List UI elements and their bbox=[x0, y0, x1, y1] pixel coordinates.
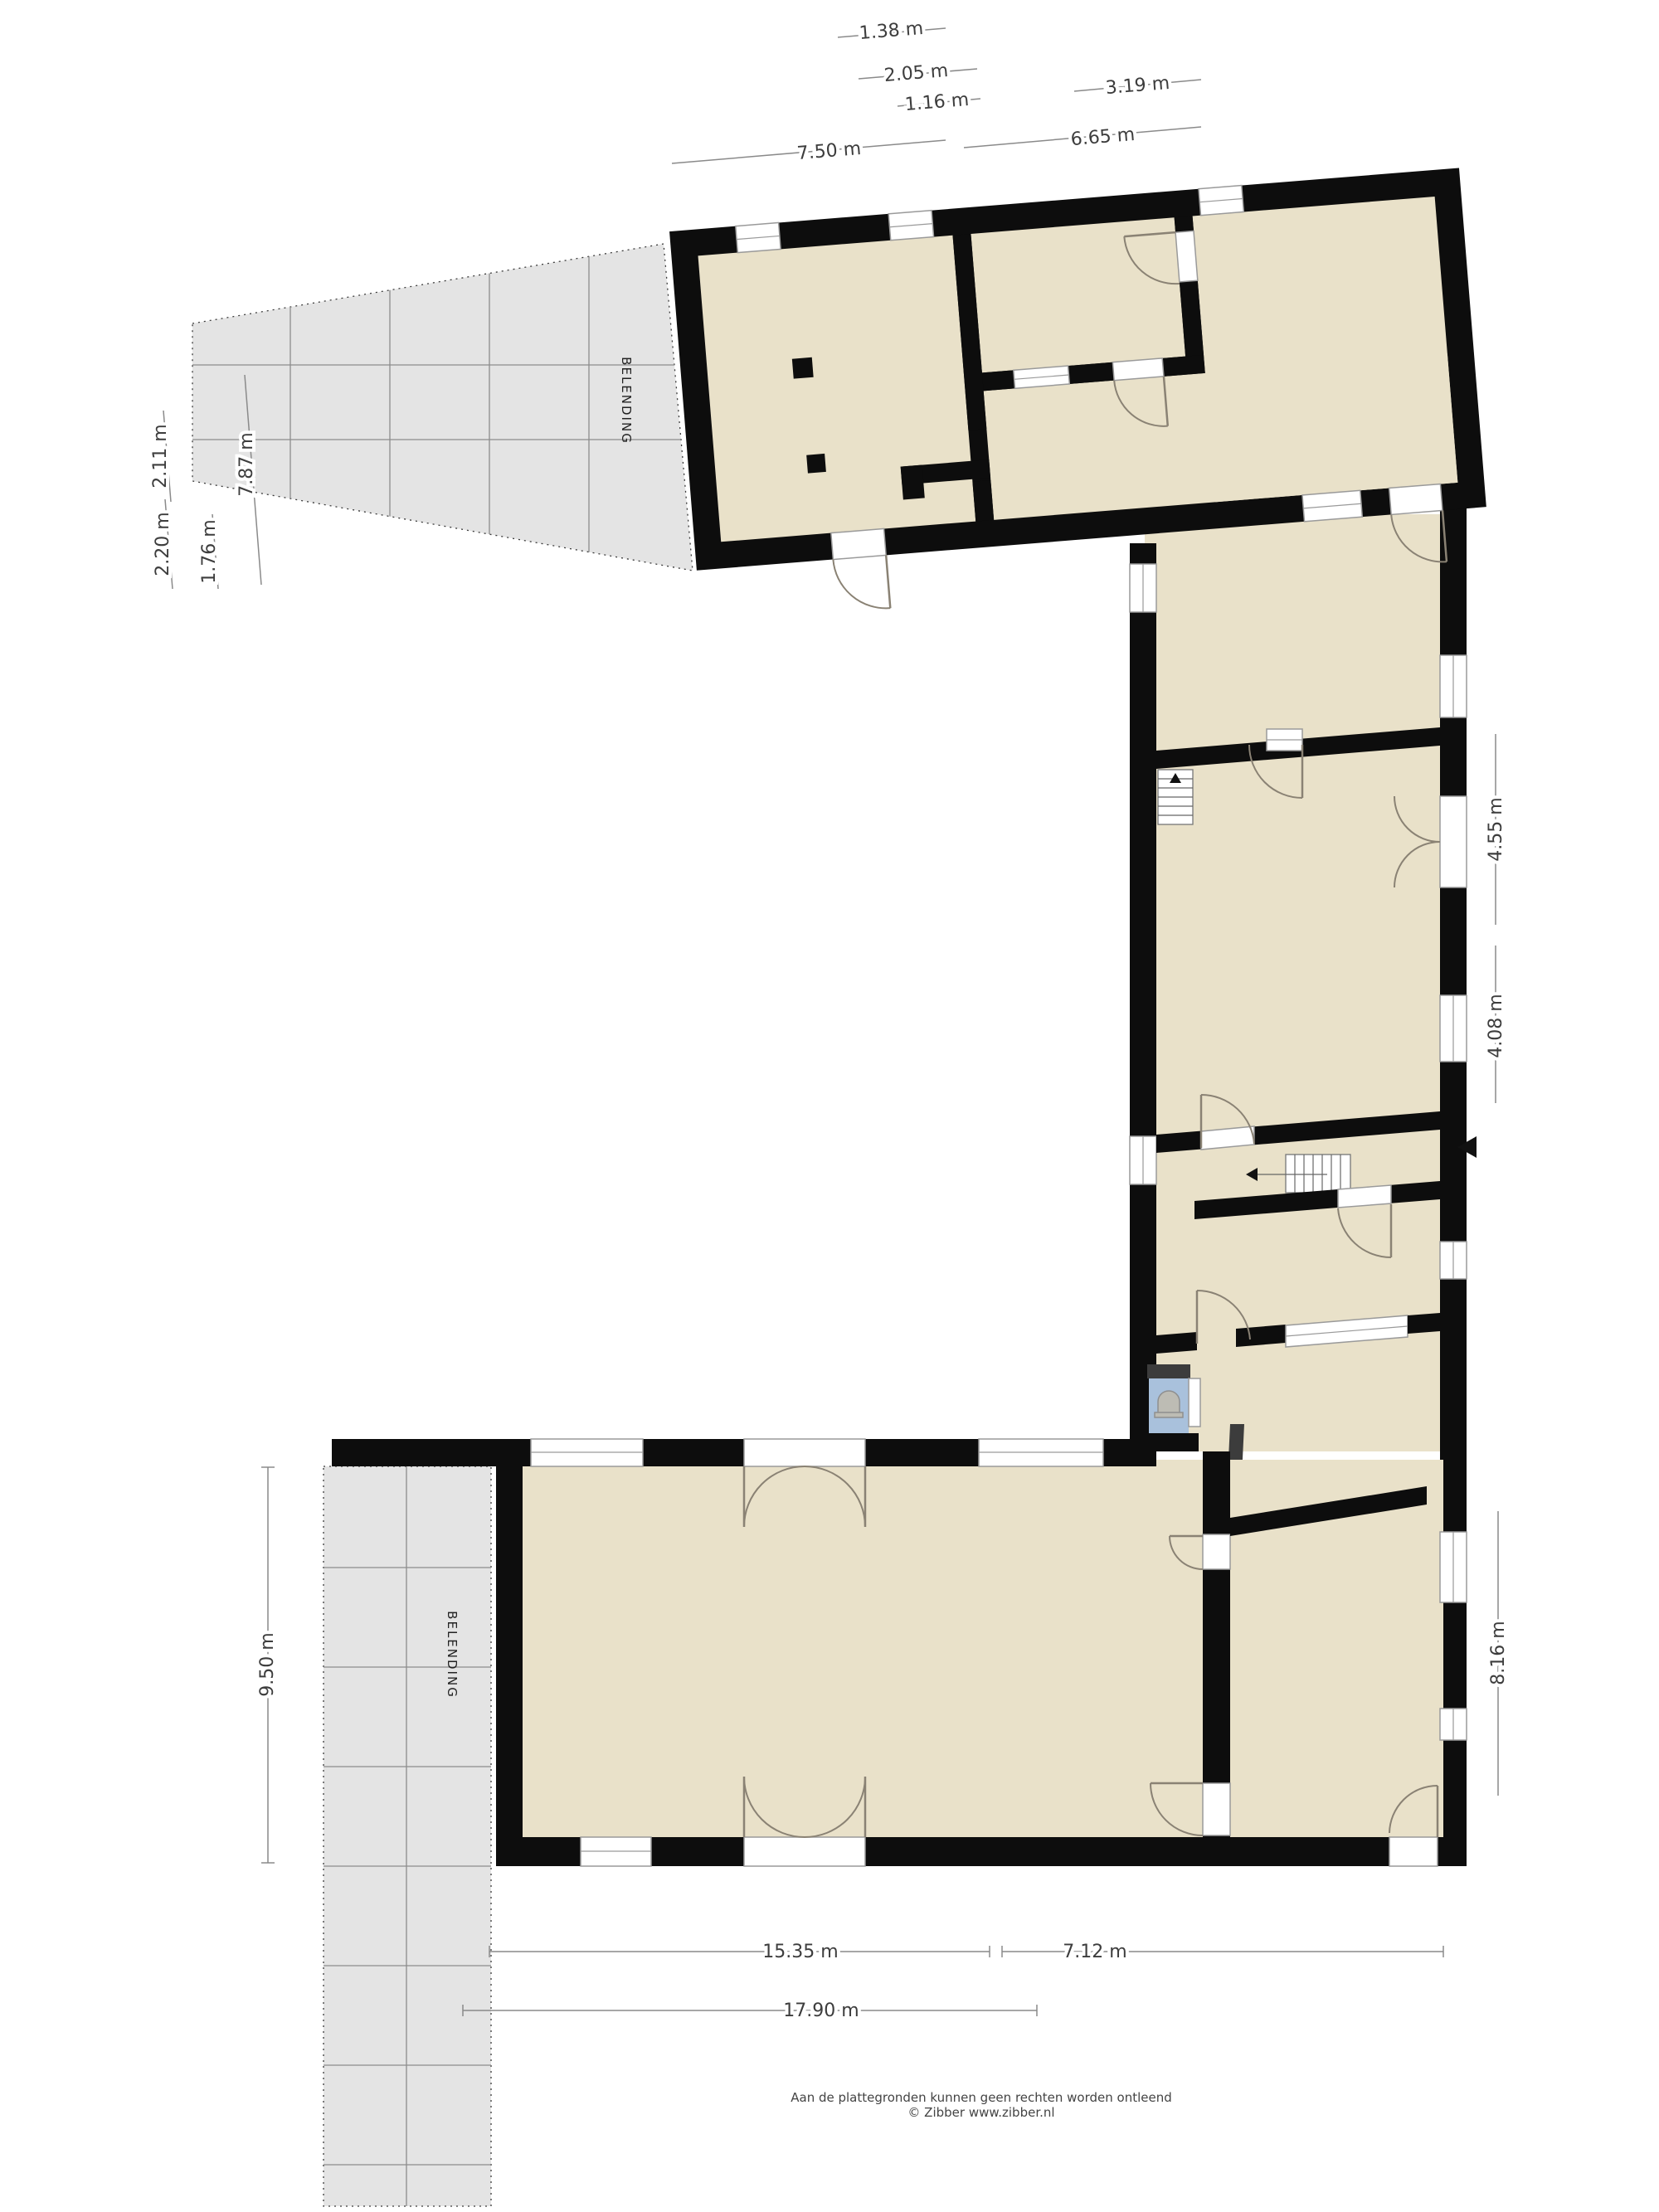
window bbox=[1440, 655, 1467, 717]
dimension-label: 8.16 m bbox=[1488, 1621, 1509, 1685]
toilet-icon-base bbox=[1155, 1412, 1183, 1417]
dimension-label: 6.65 m bbox=[1070, 124, 1136, 150]
dimension-label: 1.76 m bbox=[199, 519, 220, 583]
dimension-label: 7.50 m bbox=[796, 139, 862, 164]
window bbox=[1199, 186, 1243, 216]
dimension-label: 2.20 m bbox=[153, 512, 173, 576]
dimension-label: 4.08 m bbox=[1486, 994, 1506, 1057]
dimension-label: 7.12 m bbox=[1063, 1942, 1126, 1962]
window bbox=[1014, 366, 1070, 388]
window bbox=[1440, 1242, 1467, 1279]
dimension-label: 9.50 m bbox=[257, 1632, 278, 1696]
dimension-label: 1.16 m bbox=[904, 90, 970, 115]
dimensions-bottom: 15.35 m 7.12 m 17.90 m bbox=[463, 1942, 1443, 2021]
window bbox=[1440, 995, 1467, 1062]
window bbox=[736, 222, 781, 252]
window bbox=[531, 1439, 643, 1466]
room-top-left bbox=[698, 236, 975, 542]
window bbox=[1440, 1709, 1467, 1740]
window bbox=[979, 1439, 1103, 1466]
barn-left-wall bbox=[496, 1466, 523, 1866]
dimension-label: 3.19 m bbox=[1105, 73, 1170, 99]
window bbox=[1440, 1532, 1467, 1602]
stairs-small bbox=[1158, 770, 1193, 824]
bottom-wing bbox=[332, 1439, 1467, 1866]
window bbox=[1302, 490, 1362, 522]
dimensions-top: 1.38 m 2.05 m 1.16 m 3.19 m 7.50 m 6.65 … bbox=[672, 18, 1201, 164]
door bbox=[831, 528, 890, 612]
room-top-middle bbox=[971, 217, 1185, 372]
adjacent-area-bottom-left: BELENDING bbox=[324, 1466, 491, 2206]
window bbox=[581, 1837, 651, 1866]
dimension-label: 2.11 m bbox=[150, 424, 171, 488]
dimensions-left: 2.11 m 7.87 m 2.20 m 1.76 m 9.50 m bbox=[150, 375, 278, 1863]
toilet-icon bbox=[1158, 1391, 1180, 1414]
dimension-label: 1.38 m bbox=[859, 18, 924, 44]
footer-disclaimer: Aan de plattegronden kunnen geen rechten… bbox=[791, 2090, 1172, 2105]
interior-wall bbox=[972, 480, 994, 522]
window bbox=[1130, 1136, 1156, 1184]
window bbox=[888, 211, 933, 241]
floor-plan-page: BELENDING BELENDING bbox=[0, 0, 1659, 2212]
window bbox=[1130, 564, 1156, 612]
dimension-label: 4.55 m bbox=[1486, 797, 1506, 861]
right-wing-rooms bbox=[1145, 514, 1447, 1451]
dimension-label: 7.87 m bbox=[236, 432, 257, 496]
footer-copyright: © Zibber www.zibber.nl bbox=[907, 2105, 1054, 2120]
adjacent-area-top-left: BELENDING bbox=[192, 241, 693, 581]
dimension-label: 15.35 m bbox=[762, 1942, 838, 1962]
pillar bbox=[792, 357, 814, 379]
pillar bbox=[901, 465, 925, 500]
footer: Aan de plattegronden kunnen geen rechten… bbox=[791, 2090, 1172, 2120]
belending-label: BELENDING bbox=[619, 357, 634, 445]
right-wing-left-wall bbox=[1130, 543, 1156, 1451]
belending-label: BELENDING bbox=[445, 1611, 460, 1699]
dimension-label: 2.05 m bbox=[883, 61, 949, 86]
floor-plan-svg: BELENDING BELENDING bbox=[0, 0, 1659, 2212]
pillar bbox=[806, 454, 826, 474]
dimension-label: 17.90 m bbox=[783, 2001, 859, 2021]
